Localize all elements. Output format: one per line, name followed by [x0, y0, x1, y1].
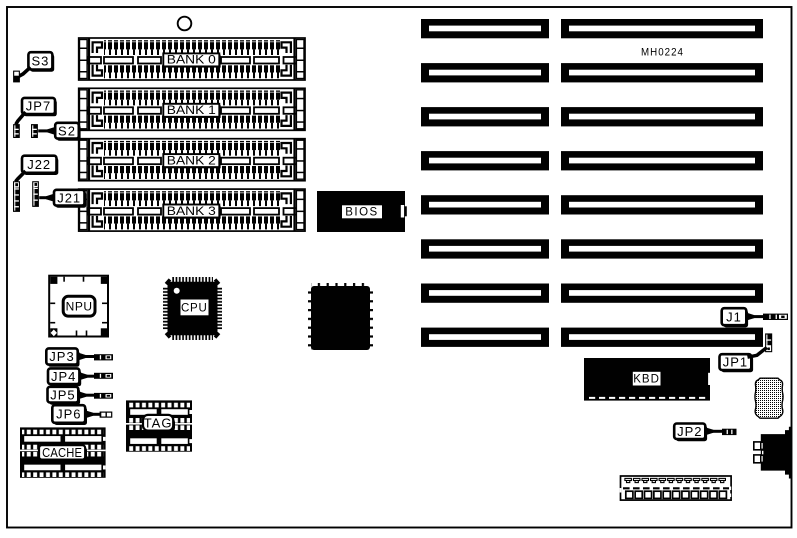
svg-text:J22: J22: [27, 157, 51, 172]
svg-text:BANK 3: BANK 3: [167, 206, 216, 218]
svg-text:TAG: TAG: [144, 415, 173, 430]
svg-text:BANK 1: BANK 1: [167, 105, 216, 117]
svg-text:JP3: JP3: [49, 349, 74, 364]
svg-text:BANK 2: BANK 2: [167, 155, 216, 167]
svg-text:BIOS: BIOS: [345, 207, 378, 219]
svg-text:S3: S3: [31, 54, 49, 69]
svg-text:MH0224: MH0224: [641, 47, 684, 59]
svg-text:JP5: JP5: [50, 387, 75, 402]
svg-text:JP2: JP2: [677, 424, 702, 439]
svg-text:NPU: NPU: [66, 299, 93, 313]
svg-text:JP4: JP4: [51, 369, 76, 384]
svg-text:JP6: JP6: [56, 407, 81, 422]
svg-text:CPU: CPU: [181, 303, 208, 315]
svg-text:JP7: JP7: [26, 99, 51, 114]
svg-text:JP1: JP1: [723, 355, 748, 370]
svg-text:J21: J21: [57, 190, 81, 205]
svg-text:KBD: KBD: [633, 374, 660, 386]
svg-text:S2: S2: [58, 123, 76, 138]
svg-text:J1: J1: [726, 309, 742, 324]
svg-text:BANK 0: BANK 0: [167, 55, 216, 67]
svg-text:CACHE: CACHE: [42, 446, 82, 460]
